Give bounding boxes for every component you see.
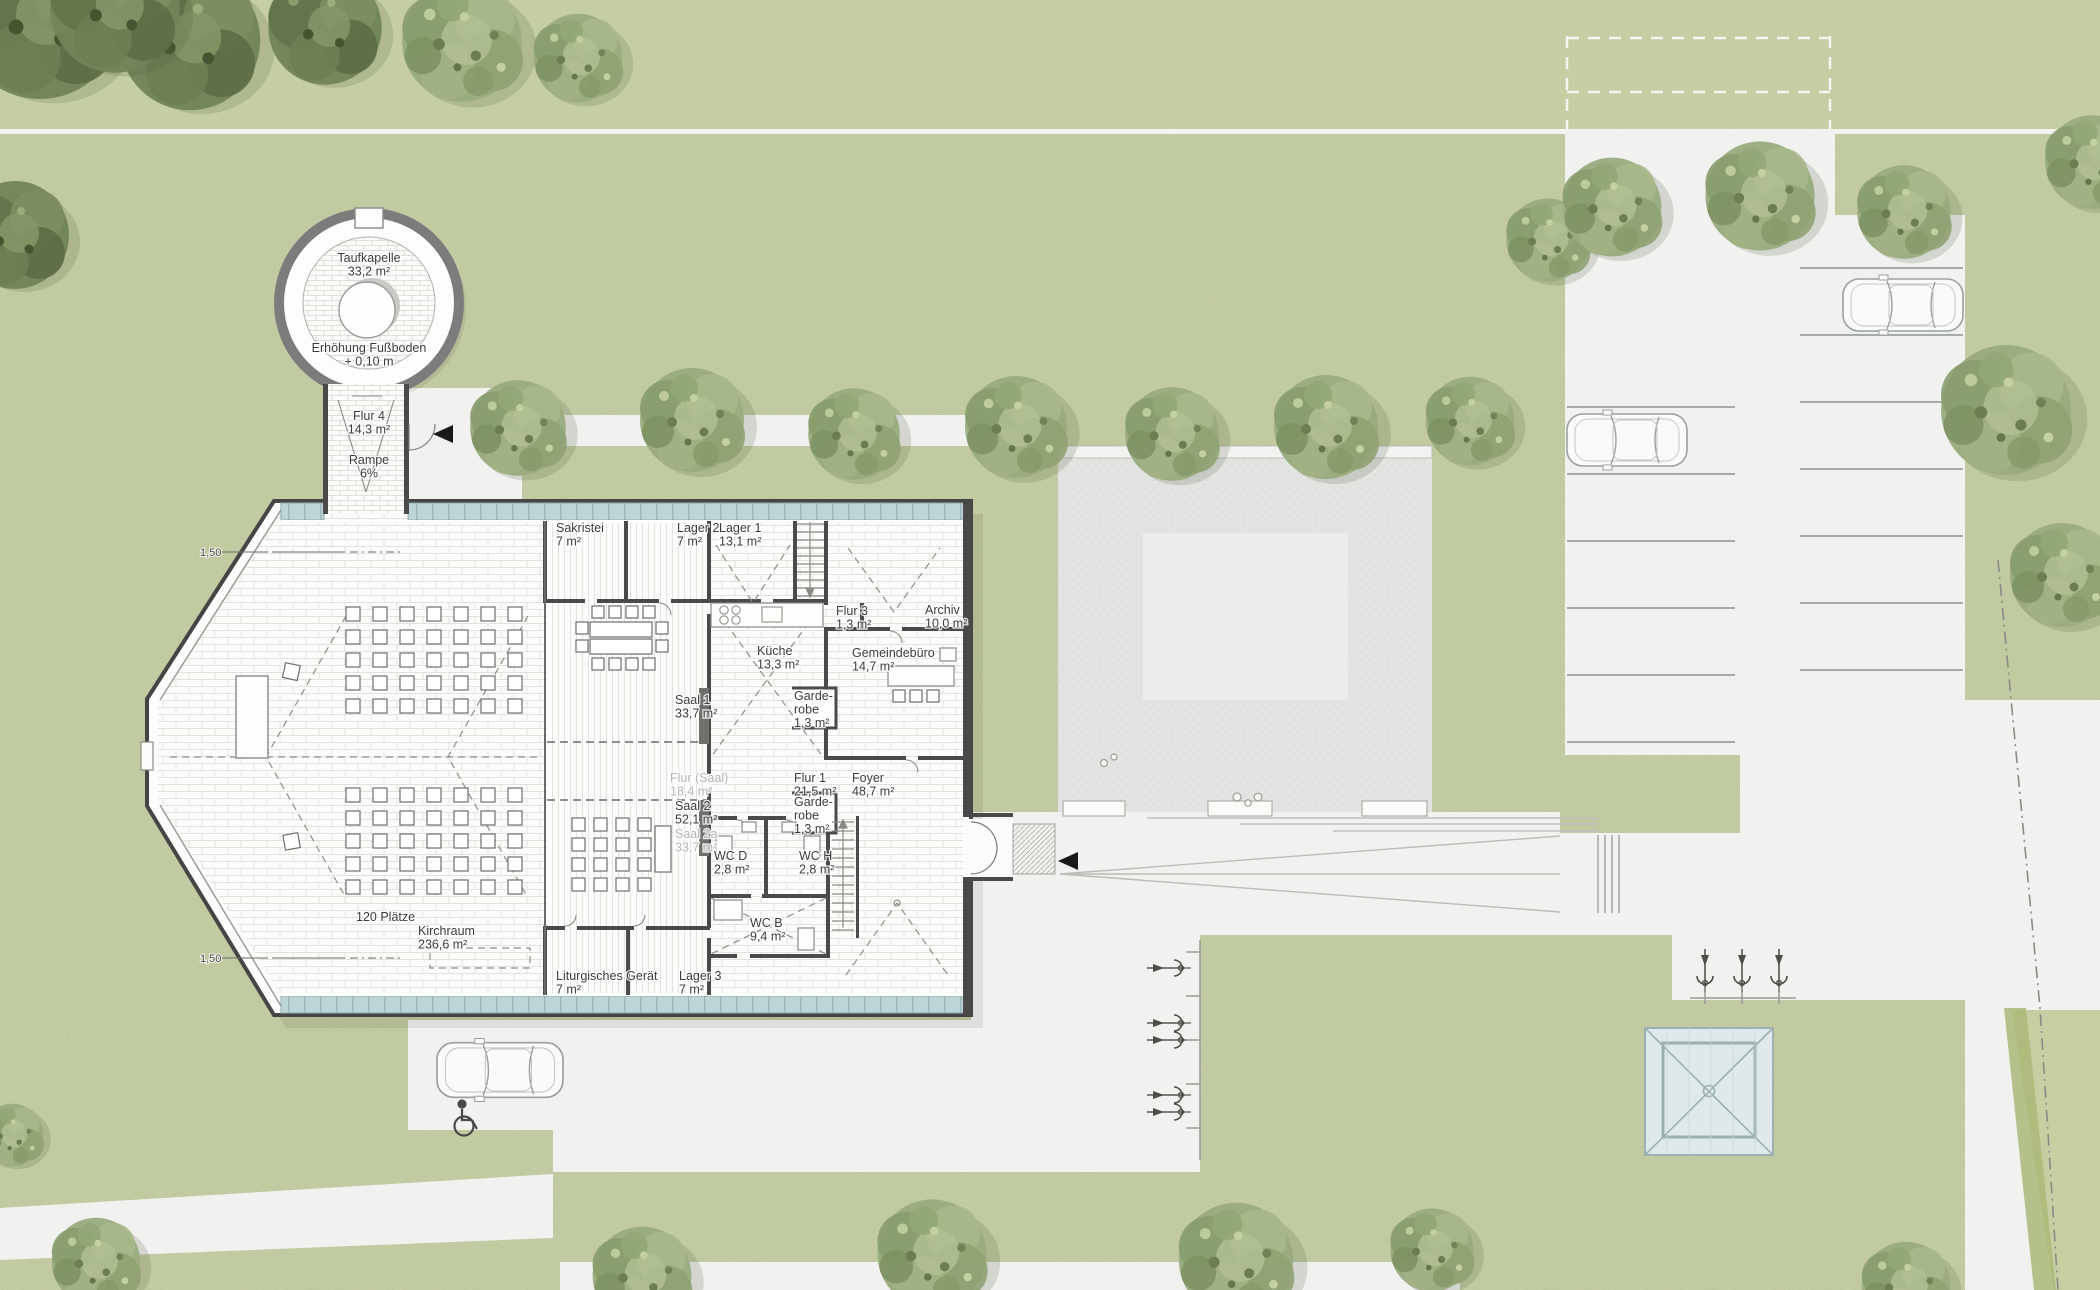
north-glazing-band bbox=[408, 503, 965, 520]
glazing-sill bbox=[281, 520, 965, 523]
chair bbox=[346, 811, 360, 825]
glazing-sill bbox=[281, 993, 965, 996]
chair bbox=[508, 676, 522, 690]
west-window bbox=[141, 742, 153, 770]
chair bbox=[454, 607, 468, 621]
chair bbox=[346, 676, 360, 690]
chair bbox=[454, 788, 468, 802]
wall bbox=[918, 756, 965, 760]
chair bbox=[656, 622, 668, 634]
south-glazing-band bbox=[281, 996, 965, 1013]
chair bbox=[481, 630, 495, 644]
chair bbox=[572, 818, 585, 831]
chair bbox=[481, 857, 495, 871]
room-label: Saal 2a33,7 m² bbox=[675, 827, 717, 855]
parking-walkway-connector bbox=[1740, 755, 1965, 815]
wall bbox=[577, 926, 634, 930]
chair bbox=[427, 630, 441, 644]
chair bbox=[638, 838, 651, 851]
wall bbox=[963, 879, 971, 1015]
wall bbox=[824, 521, 828, 605]
car-icon bbox=[1567, 410, 1687, 470]
chair bbox=[643, 658, 655, 670]
chair bbox=[427, 857, 441, 871]
chair bbox=[373, 653, 387, 667]
glass-pavilion-icon bbox=[1645, 1028, 1773, 1155]
chair bbox=[609, 658, 621, 670]
chair bbox=[454, 880, 468, 894]
chair bbox=[893, 690, 905, 702]
dimension-label: 1,50 bbox=[200, 953, 221, 965]
chair bbox=[346, 857, 360, 871]
chair bbox=[481, 699, 495, 713]
room-label: WC H2,8 m² bbox=[799, 849, 834, 877]
chair bbox=[616, 838, 629, 851]
room-label: Lager 113,1 m² bbox=[719, 521, 761, 549]
chair bbox=[594, 838, 607, 851]
room-label: WC B9,4 m² bbox=[750, 916, 785, 944]
chair bbox=[400, 676, 414, 690]
tower-door bbox=[355, 208, 383, 228]
car-icon bbox=[437, 1039, 563, 1102]
chair bbox=[373, 630, 387, 644]
walkway-east-apron bbox=[1672, 935, 1965, 1000]
entrance-mat bbox=[1013, 824, 1055, 874]
chair bbox=[400, 630, 414, 644]
east-entrance-opening bbox=[965, 819, 1013, 877]
chair bbox=[400, 699, 414, 713]
chair bbox=[508, 834, 522, 848]
wall bbox=[671, 599, 709, 603]
altar-platform bbox=[236, 676, 268, 758]
chair bbox=[373, 811, 387, 825]
wall bbox=[748, 816, 786, 820]
wall bbox=[963, 501, 971, 815]
wall bbox=[707, 938, 711, 995]
chair bbox=[576, 622, 588, 634]
chair bbox=[481, 788, 495, 802]
chair bbox=[643, 606, 655, 618]
wall bbox=[646, 926, 710, 930]
chair bbox=[400, 880, 414, 894]
chair bbox=[454, 676, 468, 690]
chair bbox=[616, 818, 629, 831]
baptismal-font bbox=[339, 282, 395, 338]
chair bbox=[346, 607, 360, 621]
plaza-inner-square bbox=[1143, 533, 1348, 700]
chair bbox=[594, 818, 607, 831]
wall bbox=[762, 894, 828, 898]
chair bbox=[508, 699, 522, 713]
wall bbox=[793, 521, 797, 605]
chair bbox=[400, 788, 414, 802]
chair bbox=[373, 699, 387, 713]
room-label: WC D2,8 m² bbox=[714, 849, 749, 877]
wall bbox=[750, 954, 828, 958]
chair bbox=[427, 834, 441, 848]
chair bbox=[373, 857, 387, 871]
chair bbox=[572, 878, 585, 891]
room-label: Kirchraum236,6 m² bbox=[418, 924, 475, 952]
chair bbox=[508, 811, 522, 825]
chair bbox=[616, 878, 629, 891]
chair bbox=[427, 653, 441, 667]
chair bbox=[346, 630, 360, 644]
chair bbox=[592, 658, 604, 670]
kitchen-counter bbox=[711, 603, 823, 627]
chair bbox=[638, 818, 651, 831]
chair bbox=[427, 676, 441, 690]
lectern bbox=[283, 833, 300, 850]
chair bbox=[427, 811, 441, 825]
chair bbox=[508, 607, 522, 621]
room-label: 120 Plätze bbox=[356, 910, 415, 924]
wall bbox=[826, 816, 830, 958]
chair bbox=[594, 858, 607, 871]
chair bbox=[481, 676, 495, 690]
chair bbox=[427, 699, 441, 713]
wall bbox=[626, 930, 630, 995]
chair bbox=[400, 653, 414, 667]
chair bbox=[454, 811, 468, 825]
chair bbox=[656, 640, 668, 652]
chair bbox=[454, 699, 468, 713]
wall bbox=[856, 816, 859, 938]
wall bbox=[963, 877, 1013, 881]
chair bbox=[592, 606, 604, 618]
wall bbox=[764, 820, 768, 896]
chair bbox=[346, 788, 360, 802]
north-glazing-band bbox=[281, 503, 324, 520]
chair bbox=[910, 690, 922, 702]
wall bbox=[597, 599, 659, 603]
chair bbox=[400, 607, 414, 621]
chair bbox=[576, 640, 588, 652]
lectern bbox=[282, 663, 300, 681]
chair bbox=[616, 858, 629, 871]
wall bbox=[624, 521, 628, 600]
chair bbox=[400, 834, 414, 848]
wall bbox=[963, 813, 1013, 817]
chair bbox=[626, 658, 638, 670]
chair bbox=[572, 838, 585, 851]
car-icon bbox=[1843, 275, 1963, 335]
chair bbox=[609, 606, 621, 618]
chair bbox=[454, 834, 468, 848]
chair bbox=[508, 630, 522, 644]
chair bbox=[481, 607, 495, 621]
chair bbox=[427, 788, 441, 802]
chair bbox=[508, 788, 522, 802]
chair bbox=[373, 834, 387, 848]
chair bbox=[927, 690, 939, 702]
chair bbox=[481, 811, 495, 825]
chair bbox=[454, 653, 468, 667]
wall bbox=[543, 599, 585, 603]
chair bbox=[427, 880, 441, 894]
chair bbox=[346, 699, 360, 713]
chair bbox=[481, 834, 495, 848]
room-label: Flur 31,3 m² bbox=[836, 604, 871, 632]
chair bbox=[373, 676, 387, 690]
chair bbox=[373, 880, 387, 894]
chair bbox=[508, 653, 522, 667]
chair bbox=[626, 606, 638, 618]
dimension-label: 1,50 bbox=[200, 547, 221, 559]
chair bbox=[572, 858, 585, 871]
church-building bbox=[141, 501, 1055, 1015]
chair bbox=[638, 858, 651, 871]
chair bbox=[508, 880, 522, 894]
chair bbox=[638, 878, 651, 891]
chair bbox=[454, 857, 468, 871]
chair bbox=[346, 653, 360, 667]
chair bbox=[346, 880, 360, 894]
chair bbox=[346, 834, 360, 848]
chair bbox=[427, 607, 441, 621]
chair bbox=[373, 788, 387, 802]
chair bbox=[400, 811, 414, 825]
chair bbox=[454, 630, 468, 644]
chair bbox=[481, 653, 495, 667]
site-plan: Taufkapelle33,2 m²Erhöhung Fußboden+ 0,1… bbox=[0, 0, 2100, 1290]
wall bbox=[709, 894, 751, 898]
chair bbox=[594, 878, 607, 891]
chair bbox=[373, 607, 387, 621]
wall bbox=[824, 756, 906, 760]
site-plan-drawing: Taufkapelle33,2 m²Erhöhung Fußboden+ 0,1… bbox=[0, 0, 2100, 1290]
chair bbox=[481, 880, 495, 894]
room-label: Flur 414,3 m² bbox=[348, 409, 390, 437]
wall bbox=[709, 954, 737, 958]
chair bbox=[400, 857, 414, 871]
chair bbox=[508, 857, 522, 871]
